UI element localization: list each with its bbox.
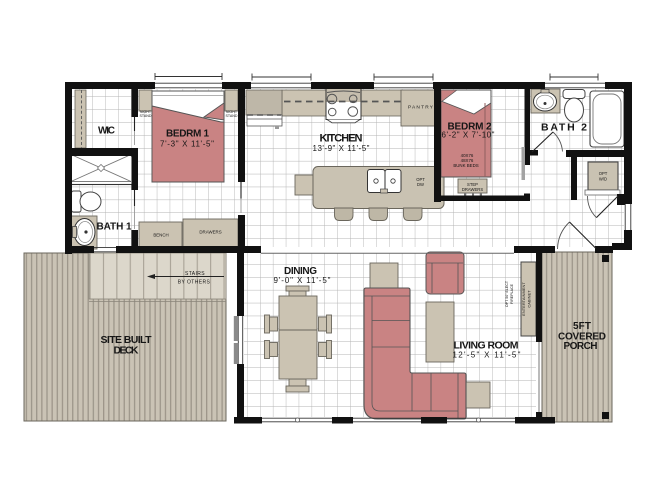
svg-text:WIC: WIC [98,126,115,137]
svg-text:STAIRS: STAIRS [185,271,205,277]
svg-text:PANTRY: PANTRY [408,105,434,111]
svg-text:DRAWERS: DRAWERS [199,230,221,235]
svg-text:CABINET: CABINET [527,290,532,308]
svg-text:BY OTHERS: BY OTHERS [178,280,211,286]
svg-text:5FT: 5FT [573,321,591,332]
svg-text:ENTERTAINMENT: ENTERTAINMENT [521,282,526,316]
svg-text:STAND: STAND [226,114,238,118]
svg-text:BENCH: BENCH [153,233,168,238]
svg-text:BEDRM 1: BEDRM 1 [166,129,209,140]
svg-text:DRAWERS: DRAWERS [462,187,483,192]
svg-text:STAND: STAND [140,114,152,118]
svg-text:7'-3" X 11'-5": 7'-3" X 11'-5" [160,140,214,149]
svg-text:OPT: OPT [599,171,608,176]
svg-text:DECK: DECK [114,345,139,357]
svg-text:W/D: W/D [599,177,607,182]
svg-text:FIREPLACE: FIREPLACE [510,283,514,304]
svg-text:BATH 1: BATH 1 [97,222,132,233]
svg-text:PORCH: PORCH [564,341,598,352]
svg-text:13'-9" X 11'-5": 13'-9" X 11'-5" [313,144,370,153]
svg-text:BATH 2: BATH 2 [541,122,587,134]
svg-text:OPT 50" ELECT: OPT 50" ELECT [505,280,509,307]
svg-text:KITCHEN: KITCHEN [320,133,363,145]
svg-text:9'-0" X 11'-5": 9'-0" X 11'-5" [274,276,331,285]
svg-text:6'-2" X 7'-10": 6'-2" X 7'-10" [442,131,495,140]
svg-text:DW: DW [417,182,424,187]
svg-text:BUNK BEDS: BUNK BEDS [453,163,478,168]
